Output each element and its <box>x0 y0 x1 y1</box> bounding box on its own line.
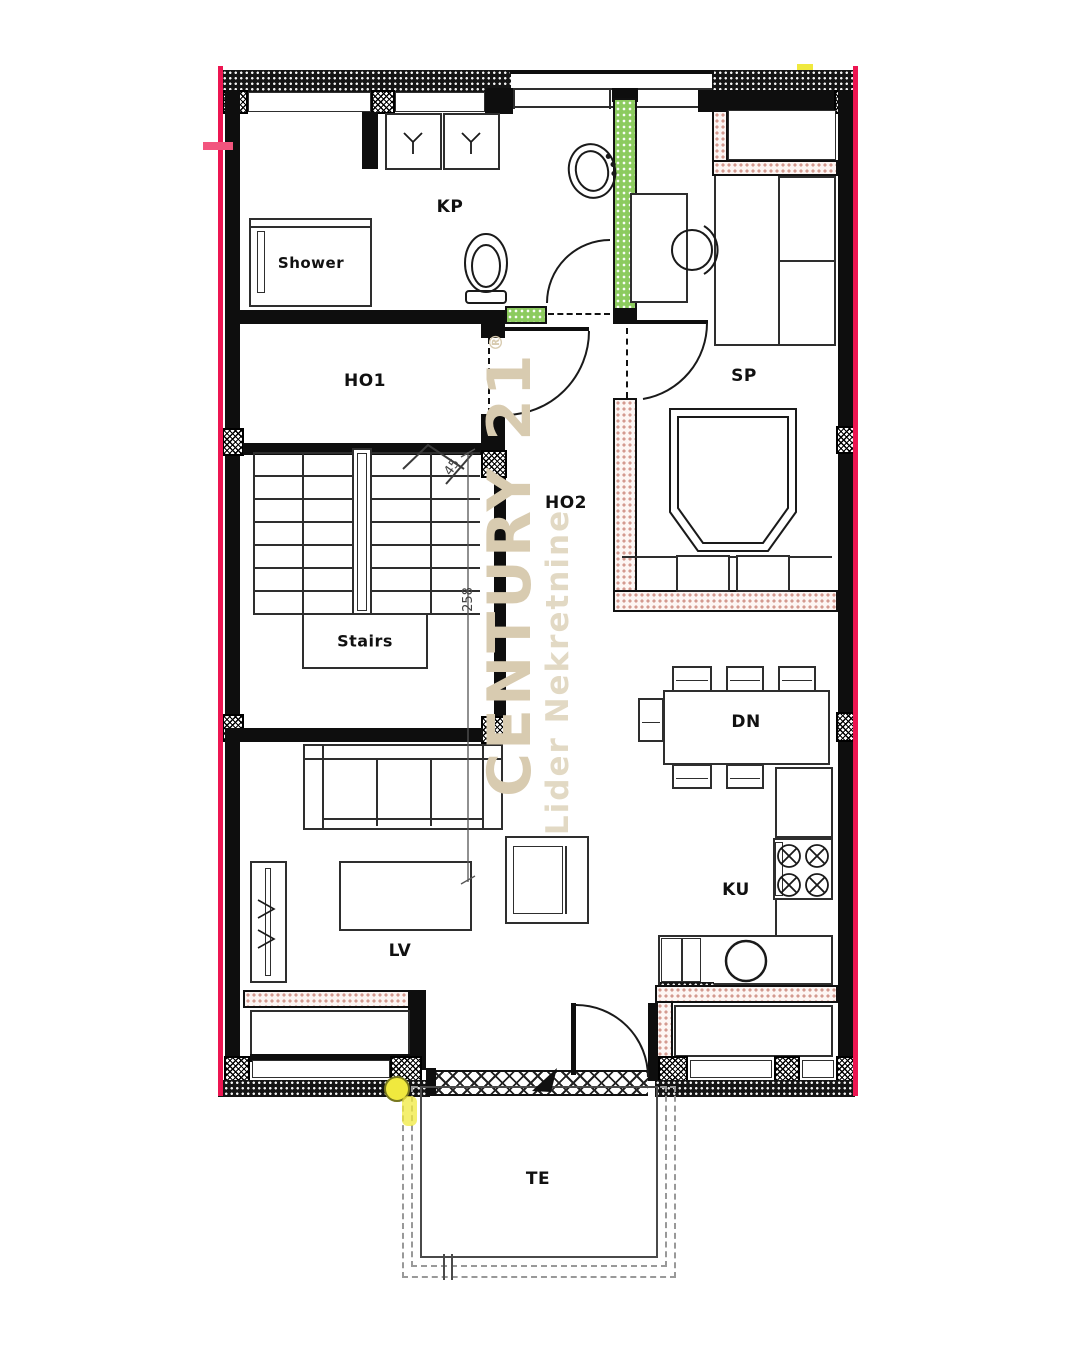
window-band-line <box>513 106 613 108</box>
stair-flight-edge <box>302 452 304 615</box>
room-label-kp: KP <box>437 197 464 217</box>
kp-door-opening <box>548 313 610 315</box>
wall-pier <box>224 1056 250 1082</box>
nightstand <box>736 555 790 592</box>
wall-pier <box>485 88 513 114</box>
niche-insulation-bottom <box>712 160 838 176</box>
window-frame-tick <box>609 88 611 109</box>
left-wall <box>225 90 240 1058</box>
counter-cabinet-divider <box>681 938 683 982</box>
stove-handle <box>775 842 783 896</box>
tv-screen <box>265 868 271 976</box>
room-label-shower: Shower <box>278 254 344 272</box>
wall-niche <box>252 1060 390 1078</box>
wardrobe-divider <box>780 260 834 262</box>
sp-left-wall <box>613 398 637 598</box>
wall-pier <box>222 428 244 456</box>
dining-chair <box>778 666 816 692</box>
room-label-te: TE <box>526 1169 550 1189</box>
bed-icon <box>670 409 796 551</box>
coffee-table <box>339 861 472 931</box>
stair-flight-edge <box>253 452 255 615</box>
window-frame-tick <box>513 88 515 109</box>
watermark-subtitle: Lider Nekretnine <box>540 487 576 857</box>
lv-bottom-insulation <box>243 990 415 1008</box>
sofa-seat-divider <box>430 760 432 826</box>
dryer <box>443 113 500 170</box>
wall-pier <box>371 90 395 114</box>
stair-flight-edge <box>430 452 432 615</box>
toilet-icon <box>465 234 507 303</box>
wall-niche <box>802 1060 834 1078</box>
top-wall-insulation-right <box>712 70 855 92</box>
room-label-sp: SP <box>731 366 757 386</box>
wall-pier <box>658 1056 688 1082</box>
counter-edge <box>775 900 777 935</box>
sp-door-leaf <box>628 320 708 324</box>
dining-chair <box>672 764 712 789</box>
dining-chair <box>726 666 764 692</box>
room-label-dn: DN <box>731 712 760 732</box>
dimension-stair-run: 258 <box>461 587 476 612</box>
red-tick-left <box>203 142 233 150</box>
sofa-seat-front-line <box>322 818 484 820</box>
wall-pier <box>774 1056 800 1082</box>
shower-channel <box>257 231 265 293</box>
dining-chair <box>726 764 764 789</box>
washer-stub-wall <box>362 112 378 169</box>
ho1-door-leaf <box>505 327 589 331</box>
sofa-armrest-line <box>322 746 324 828</box>
room-label-ho1: HO1 <box>344 371 386 391</box>
highlight-marker <box>402 1096 417 1126</box>
sofa-seat-divider <box>376 760 378 826</box>
floor-plan: CENTURY 21® Lider Nekretnine KP Shower H… <box>0 0 1080 1350</box>
wall-niche <box>395 92 485 112</box>
kp-door-arc <box>547 240 610 303</box>
wall-niche <box>690 1060 772 1078</box>
sp-door-arc <box>643 323 707 399</box>
dining-chair <box>638 698 664 742</box>
wall-niche <box>728 110 836 160</box>
top-right-wall <box>698 90 838 112</box>
yellow-tick-top <box>797 64 813 70</box>
washer <box>385 113 442 170</box>
bay-window-right <box>674 1005 833 1057</box>
kp-bottom-wall <box>238 310 505 324</box>
closet-side-line <box>714 176 716 346</box>
shower-inner-line <box>251 226 370 228</box>
kitchen-cabinet <box>775 767 833 838</box>
bottom-wall-insulation-right <box>655 1080 855 1097</box>
stairs-bottom-wall <box>225 728 483 742</box>
boundary-line-right <box>853 66 858 1096</box>
wall-niche <box>248 92 371 112</box>
glass-sill <box>505 306 547 324</box>
boundary-line-left <box>218 66 223 1096</box>
ku-bottom-insulation <box>655 985 838 1003</box>
terrace-door-leaf <box>571 1003 576 1075</box>
top-wall-insulation-left <box>222 70 511 92</box>
room-label-stairs: Stairs <box>337 632 393 651</box>
right-wall <box>838 90 853 1058</box>
nightstand <box>676 555 730 592</box>
room-label-lv: LV <box>389 941 412 961</box>
bay-window-left <box>250 1010 410 1058</box>
sofa-backrest-line <box>305 758 501 760</box>
terrace-tick <box>451 1254 453 1280</box>
terrace-door-arc <box>576 1005 648 1077</box>
registered-mark: ® <box>486 330 507 351</box>
room-label-ho2: HO2 <box>545 493 587 513</box>
sp-door-closed-line <box>626 328 628 398</box>
terrace-tick <box>443 1254 445 1280</box>
watermark-brand-text: CENTURY 21 <box>475 351 545 797</box>
top-window-lintel <box>510 70 714 74</box>
sp-bottom-wall <box>613 590 838 612</box>
dining-chair <box>672 666 712 692</box>
watermark-brand: CENTURY 21® <box>475 417 535 797</box>
door-jamb-wall <box>648 1003 658 1081</box>
stair-stringer-inner <box>357 453 367 611</box>
room-label-ku: KU <box>722 880 750 900</box>
desk <box>630 193 688 303</box>
